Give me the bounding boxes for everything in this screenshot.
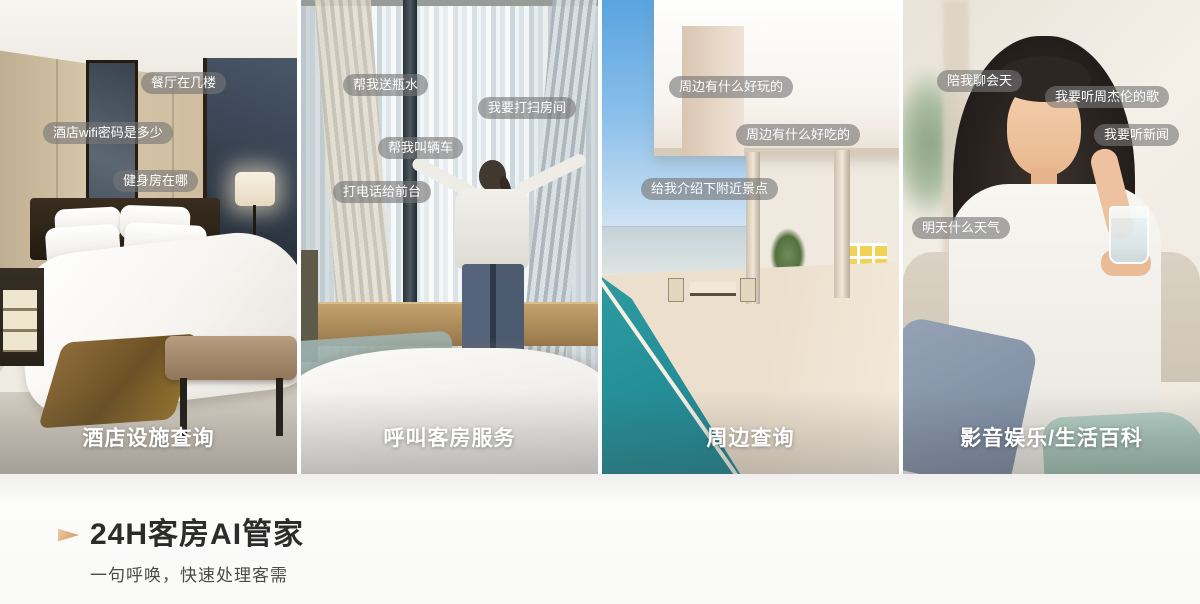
panel-hotel-facility-query: 餐厅在几楼 酒店wifi密码是多少 健身房在哪 酒店设施查询: [0, 0, 297, 474]
query-bubble: 帮我送瓶水: [343, 74, 428, 96]
panel-caption: 呼叫客房服务: [301, 422, 598, 452]
query-bubble: 明天什么天气: [912, 217, 1010, 239]
person-torso: [455, 189, 529, 269]
query-bubble: 我要听新闻: [1094, 124, 1179, 146]
query-bubble: 给我介绍下附近景点: [641, 178, 778, 200]
query-bubble: 我要听周杰伦的歌: [1045, 86, 1169, 108]
panel-caption: 影音娱乐/生活百科: [903, 422, 1200, 452]
query-bubble: 我要打扫房间: [478, 97, 576, 119]
footer-section: 24H客房AI管家 一句呼唤，快速处理客需: [0, 474, 1200, 604]
panel-nearby-query: 周边有什么好玩的 周边有什么好吃的 给我介绍下附近景点 周边查询: [602, 0, 899, 474]
footer-text-block: 24H客房AI管家 一句呼唤，快速处理客需: [90, 518, 304, 586]
panel-caption: 周边查询: [602, 422, 899, 452]
panel-entertainment-encyclopedia: 陪我聊会天 我要听周杰伦的歌 我要听新闻 明天什么天气 影音娱乐/生活百科: [903, 0, 1200, 474]
section-subtitle: 一句呼唤，快速处理客需: [90, 561, 304, 586]
query-bubble: 打电话给前台: [333, 181, 431, 203]
footer-content: 24H客房AI管家 一句呼唤，快速处理客需: [0, 474, 1200, 586]
deck-table: [690, 282, 736, 296]
query-bubble: 餐厅在几楼: [141, 72, 226, 94]
wall-lamp: [235, 172, 275, 206]
deck-chair: [740, 278, 756, 302]
query-bubble: 周边有什么好吃的: [736, 124, 860, 146]
section-title: 24H客房AI管家: [90, 518, 304, 552]
query-bubble: 酒店wifi密码是多少: [43, 122, 173, 144]
panel-room-service-call: 帮我送瓶水 我要打扫房间 帮我叫辆车 打电话给前台 呼叫客房服务: [301, 0, 598, 474]
query-bubble: 周边有什么好玩的: [669, 76, 793, 98]
panel-caption: 酒店设施查询: [0, 422, 297, 452]
feature-panels: 餐厅在几楼 酒店wifi密码是多少 健身房在哪 酒店设施查询 帮我送瓶水 我要打…: [0, 0, 1200, 474]
query-bubble: 帮我叫辆车: [378, 137, 463, 159]
nightstand-drawers: [3, 290, 37, 352]
water-glass: [1109, 206, 1149, 264]
bed-bench: [165, 336, 297, 380]
arrow-right-icon: [58, 527, 79, 543]
query-bubble: 健身房在哪: [113, 170, 198, 192]
query-bubble: 陪我聊会天: [937, 70, 1022, 92]
villa-column: [834, 150, 850, 298]
deck-chair: [668, 278, 684, 302]
